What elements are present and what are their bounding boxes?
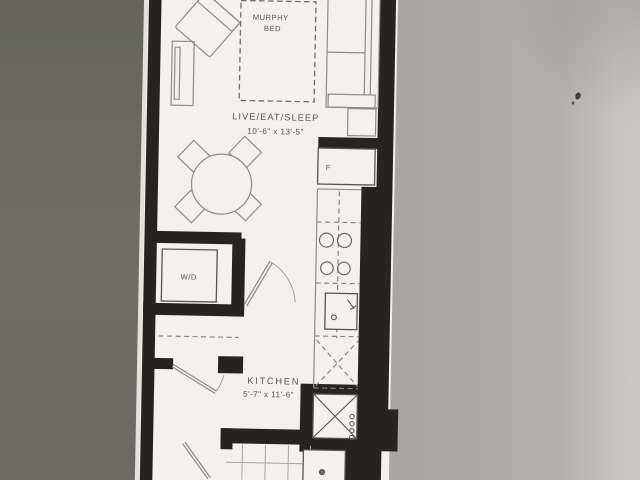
kitchen-dimensions: 5'-7" x 11'-6" — [243, 390, 294, 400]
dining-table — [191, 154, 252, 215]
fridge-label: F — [326, 163, 331, 172]
background-corner-shadow — [440, 0, 640, 190]
kitchen-label: KITCHEN — [247, 376, 300, 387]
floorplan-photo: MURPHY BED LIVE/EAT/SLEEP 10'-6" x 13'-5… — [0, 0, 640, 480]
wall-divider-living-kitchen — [318, 137, 380, 149]
laundry-wall-bottom — [143, 303, 244, 317]
floorplan-sheet: MURPHY BED LIVE/EAT/SLEEP 10'-6" x 13'-5… — [135, 0, 407, 480]
mechanical-closet — [313, 394, 358, 440]
laundry-wall-top — [148, 231, 241, 245]
hall-door-jamb-right — [218, 356, 243, 373]
murphy-bed-label-line2: BED — [264, 24, 281, 33]
floorplan-drawing: MURPHY BED LIVE/EAT/SLEEP 10'-6" x 13'-5… — [0, 0, 640, 480]
door-handle — [319, 469, 324, 474]
bathroom-wall-nub — [220, 428, 232, 449]
kitchen-sink — [325, 293, 358, 330]
background-left-surface — [0, 0, 152, 480]
exterior-wall-right-kitchen — [357, 187, 392, 414]
bathroom-wall-top — [221, 428, 312, 445]
living-room-label: LIVE/EAT/SLEEP — [232, 111, 319, 123]
exterior-wall-right-step — [356, 409, 398, 452]
entry-door — [303, 450, 346, 480]
murphy-bed-label-line1: MURPHY — [253, 13, 289, 23]
living-room-dimensions: 10'-6" x 13'-5" — [247, 127, 304, 137]
hall-door-jamb-left — [152, 358, 173, 369]
washer-dryer-label: W/D — [181, 272, 197, 281]
